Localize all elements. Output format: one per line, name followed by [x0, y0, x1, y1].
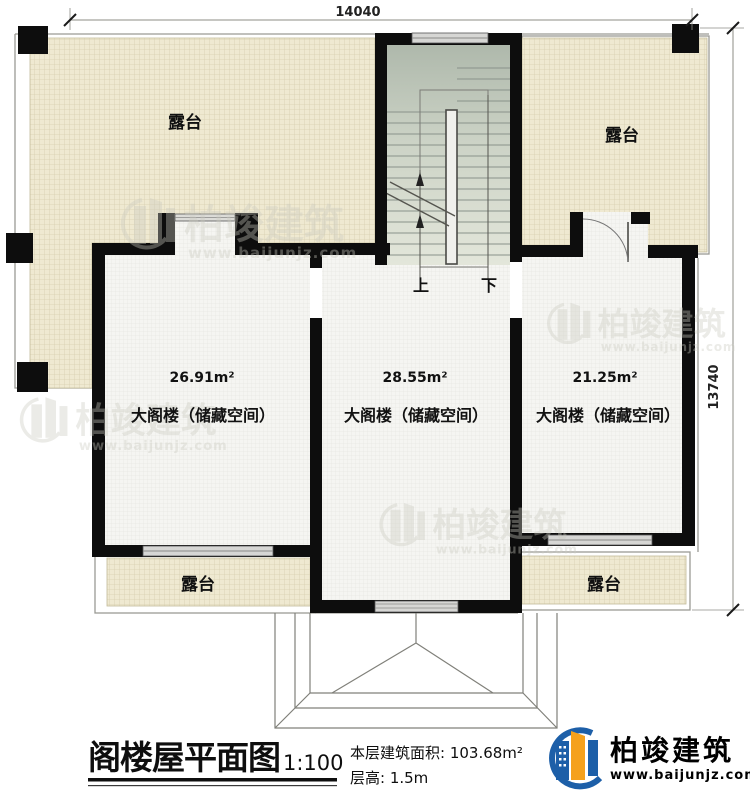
column-bottom-left [17, 362, 48, 392]
floor-height-text: 层高: 1.5m [350, 769, 428, 787]
room-right-floor [522, 255, 682, 533]
column-top-right [672, 24, 699, 53]
title-block: 阁楼屋平面图 1:100 本层建筑面积: 103.68m² 层高: 1.5m [88, 738, 523, 787]
door-jamb-w [570, 212, 583, 257]
brand-name-text: 柏竣建筑 [610, 734, 734, 767]
label-room-middle-area: 28.55m² [382, 370, 447, 386]
label-room-left-area: 26.91m² [169, 370, 234, 386]
dimension-right-label: 13740 [707, 364, 722, 409]
plan-title: 阁楼屋平面图 [88, 738, 280, 777]
wall-east [682, 250, 695, 537]
floor-plan-page: 柏竣建筑 www.baijunjz.com [0, 0, 750, 794]
stairwell [384, 43, 510, 280]
brand-website-text: www.baijunjz.com [610, 768, 750, 783]
column-top-left [18, 26, 48, 54]
column-mid-left [6, 233, 33, 263]
window-middle-south [375, 601, 458, 612]
porch-roof-outline [275, 613, 557, 728]
label-terrace-bottom-left: 露台 [181, 574, 215, 595]
window-left-south [143, 546, 273, 556]
brand-logo-icon [552, 730, 600, 786]
stair-center-rail [446, 110, 457, 264]
label-terrace-top-left: 露台 [168, 112, 202, 133]
stair-wall-east [510, 33, 522, 262]
label-terrace-top-right: 露台 [605, 125, 639, 146]
label-stair-down: 下 [481, 276, 497, 295]
label-terrace-bottom-right: 露台 [587, 574, 621, 595]
label-room-left-name: 大阁楼（储藏空间） [131, 406, 275, 425]
title-underline-thick [88, 778, 337, 782]
label-stair-up: 上 [413, 276, 429, 295]
plan-scale: 1:100 [283, 751, 344, 775]
partition-right [510, 318, 522, 613]
partition-left [310, 318, 322, 613]
wall-top-right-a [522, 245, 572, 257]
brand-block: 柏竣建筑 www.baijunjz.com [552, 730, 750, 786]
dimension-top-label: 14040 [335, 5, 380, 20]
title-underline-thin [88, 785, 337, 786]
dimension-top: 14040 [64, 5, 698, 30]
floor-plan-drawing: 柏竣建筑 www.baijunjz.com [0, 0, 750, 794]
label-room-middle-name: 大阁楼（储藏空间） [344, 406, 488, 425]
window-stair-north [412, 33, 488, 43]
floor-area-text: 本层建筑面积: 103.68m² [350, 744, 523, 762]
label-room-right-name: 大阁楼（储藏空间） [536, 406, 680, 425]
door-jamb-e [631, 212, 650, 224]
stair-wall-west [375, 33, 387, 265]
label-room-right-area: 21.25m² [572, 370, 637, 386]
room-left-floor [105, 243, 310, 545]
